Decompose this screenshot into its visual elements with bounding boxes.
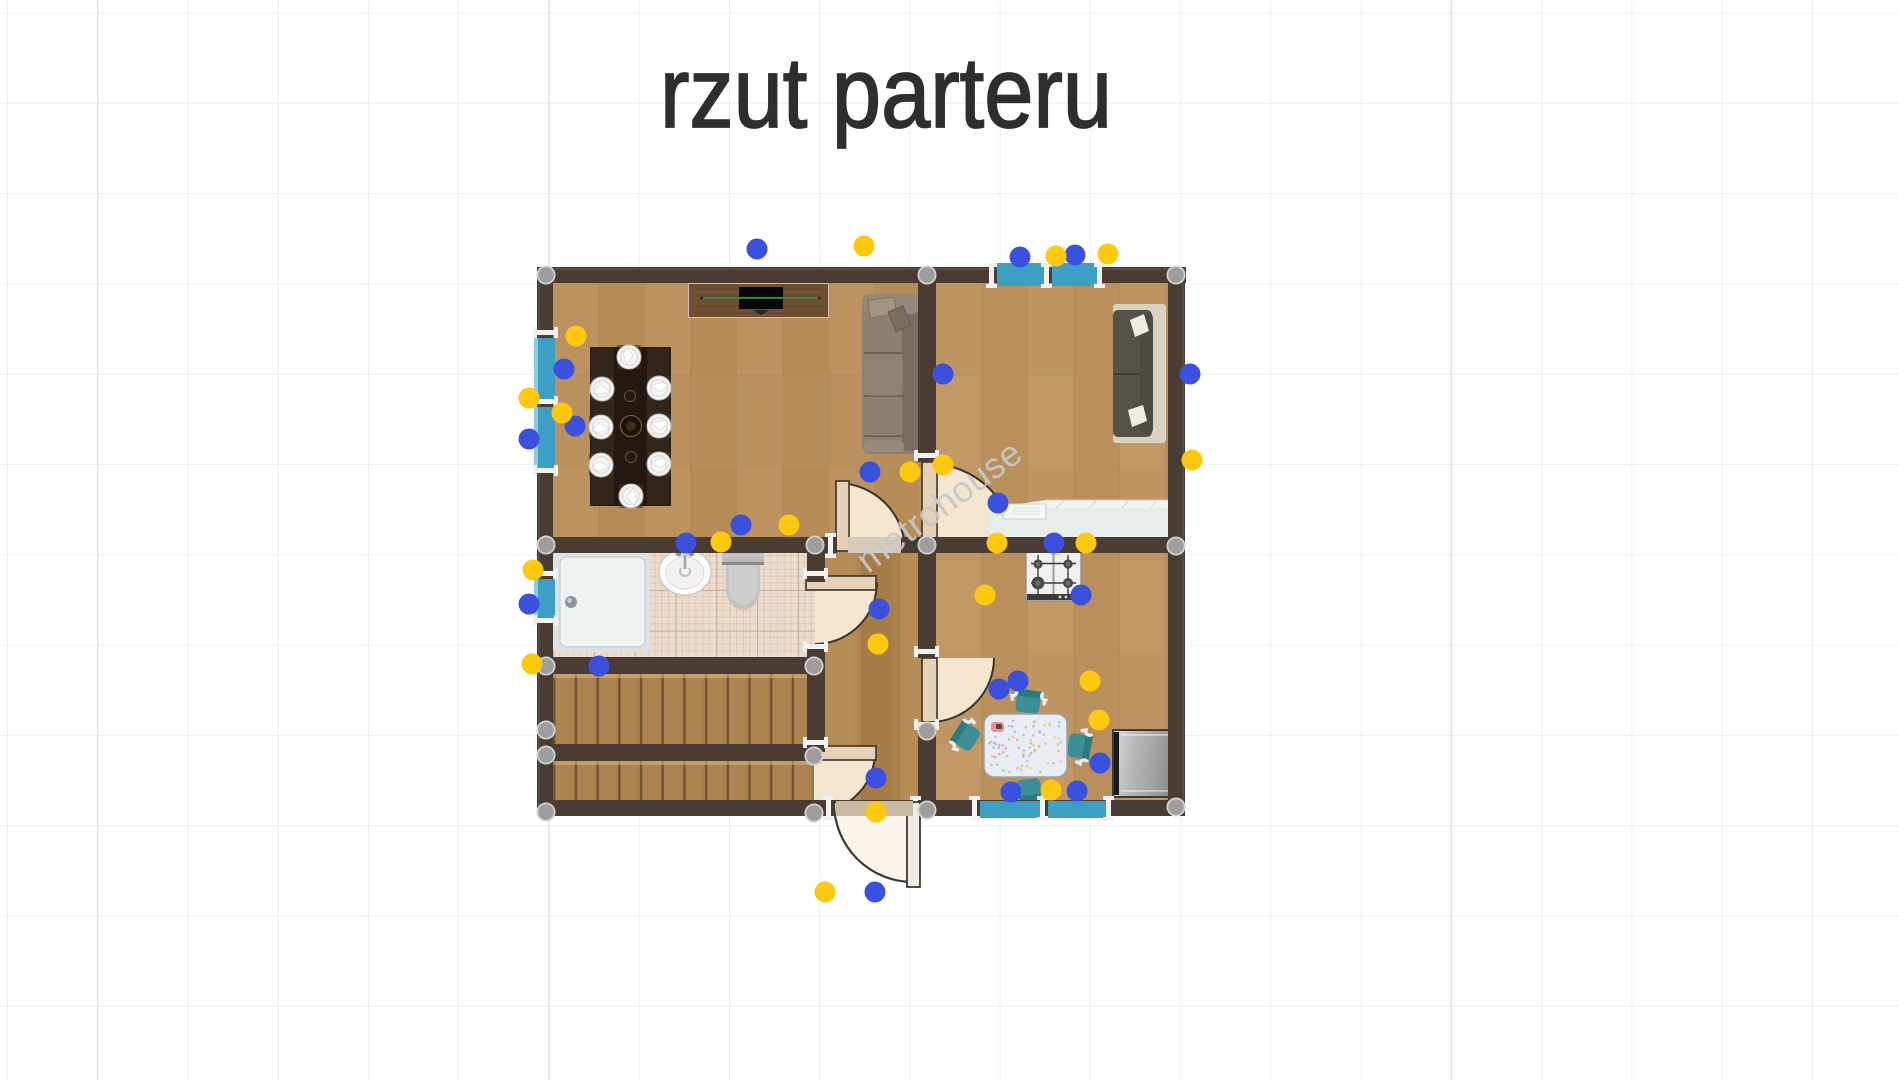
svg-text:rzut parteru: rzut parteru <box>660 37 1112 149</box>
